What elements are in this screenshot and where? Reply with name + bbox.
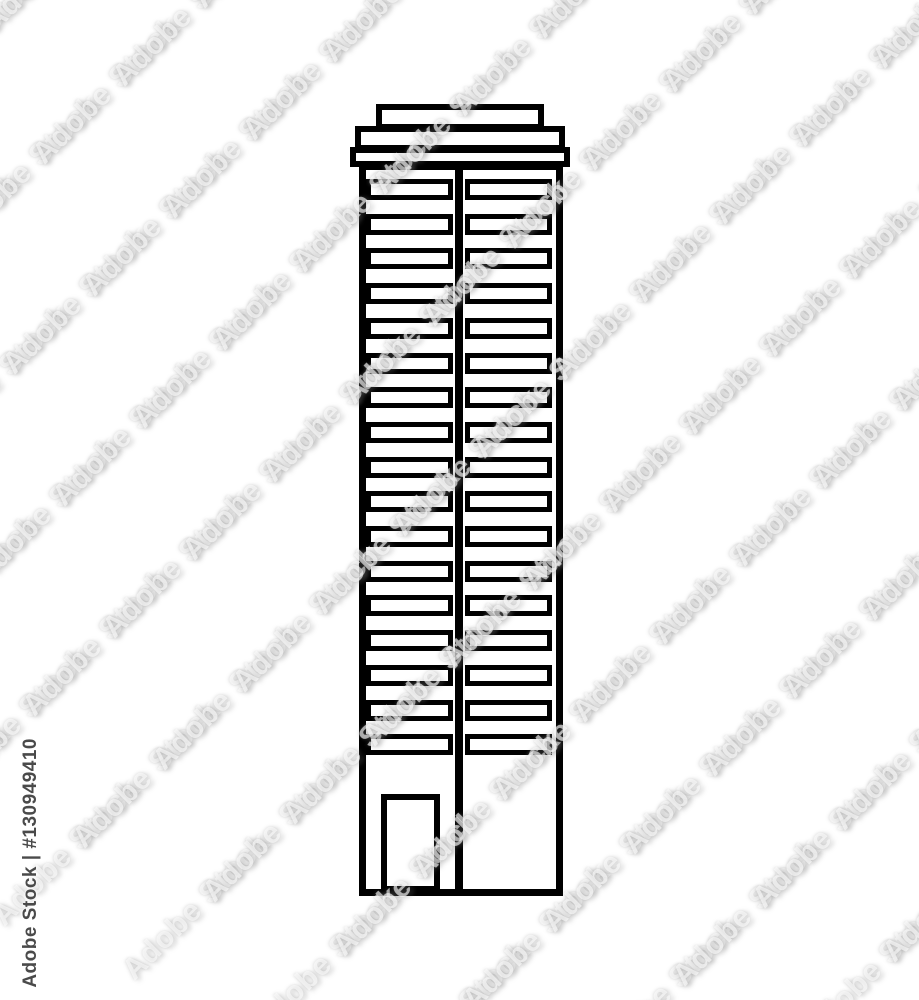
watermark-tile-text: Adobe Stock xyxy=(156,64,317,225)
watermark-tile-text: Adobe Stock xyxy=(806,334,919,495)
building-window xyxy=(366,457,453,478)
watermark-tile-text: Adobe Stock xyxy=(676,280,837,441)
window-column-right xyxy=(465,179,552,779)
watermark-tile-text: Adobe Stock xyxy=(0,0,57,117)
building-window xyxy=(366,422,453,443)
watermark-tile-text: Adobe Stock xyxy=(0,298,77,459)
watermark-tile-text: Adobe Stock xyxy=(796,886,919,1000)
building-window xyxy=(465,318,552,339)
building-window xyxy=(366,283,453,304)
watermark-tile-text: Adobe Stock xyxy=(0,430,127,591)
watermark-tile-text: Adobe Stock xyxy=(196,748,357,909)
roof-cornice xyxy=(350,147,570,167)
watermark-tile-text: Adobe Stock xyxy=(626,148,787,309)
watermark-tile-text: Adobe Stock xyxy=(96,484,257,645)
building-window xyxy=(465,283,552,304)
building-window xyxy=(366,179,453,200)
building-window xyxy=(465,179,552,200)
building-window xyxy=(465,595,552,616)
watermark-tile-text: Adobe Stock xyxy=(0,718,17,879)
watermark-tile-text: Adobe Stock xyxy=(856,466,919,627)
building-window xyxy=(465,457,552,478)
building-window xyxy=(465,734,552,755)
building-window xyxy=(366,630,453,651)
watermark-tile-text: Adobe Stock xyxy=(186,0,347,15)
watermark-tile-text: Adobe Stock xyxy=(786,0,919,153)
watermark-tile-text: Adobe Stock xyxy=(696,622,857,783)
watermark-tile-text: Adobe Stock xyxy=(236,0,397,147)
watermark-tile-text: Adobe Stock xyxy=(836,124,919,285)
building-window xyxy=(465,561,552,582)
building-window xyxy=(465,387,552,408)
watermark-tile-text: Adobe Stock xyxy=(16,562,177,723)
watermark-tile-text: Adobe Stock xyxy=(126,274,287,435)
stock-image-canvas: Adobe StockAdobe StockAdobe StockAdobe S… xyxy=(0,0,919,1000)
watermark-tile-text: Adobe Stock xyxy=(116,826,277,987)
window-column-left xyxy=(366,179,453,779)
building-window xyxy=(465,526,552,547)
building-window xyxy=(366,595,453,616)
watermark-tile-text: Adobe Stock xyxy=(746,754,907,915)
watermark-tile-text: Adobe Stock xyxy=(26,10,187,171)
watermark-tile-text: Adobe Stock xyxy=(646,490,807,651)
building-window xyxy=(465,353,552,374)
building-window xyxy=(366,491,453,512)
watermark-tile-text: Adobe Stock xyxy=(726,412,887,573)
building-window xyxy=(366,387,453,408)
watermark-tile-text: Adobe Stock xyxy=(146,616,307,777)
building-center-divider xyxy=(455,167,463,892)
watermark-tile-text: Adobe Stock xyxy=(756,202,917,363)
building-window xyxy=(366,700,453,721)
watermark-tile-text: Adobe Stock xyxy=(826,676,919,837)
watermark-tile-text: Adobe Stock xyxy=(526,0,687,45)
watermark-tile-text: Adobe Stock xyxy=(66,694,227,855)
watermark-tile-text: Adobe Stock xyxy=(106,0,267,93)
building-window xyxy=(366,214,453,235)
building-window xyxy=(366,526,453,547)
building-window xyxy=(366,318,453,339)
building-window xyxy=(366,561,453,582)
watermark-tile-text: Adobe Stock xyxy=(656,0,817,99)
watermark-tile-text: Adobe Stock xyxy=(886,256,919,417)
building-window xyxy=(465,700,552,721)
watermark-tile-text: Adobe Stock xyxy=(596,358,757,519)
watermark-tile-text: Adobe Stock xyxy=(246,880,407,1000)
watermark-tile-text: Adobe Stock xyxy=(666,832,827,993)
building-window xyxy=(366,353,453,374)
building-window xyxy=(366,248,453,269)
watermark-tile-text: Adobe Stock xyxy=(76,142,237,303)
watermark-tile-text: Adobe Stock xyxy=(0,166,27,327)
building-window xyxy=(465,665,552,686)
watermark-tile-text: Adobe Stock xyxy=(0,0,137,39)
building-window xyxy=(465,630,552,651)
watermark-tile-text: Adobe Stock xyxy=(206,196,367,357)
watermark-tile-text: Adobe Stock xyxy=(866,0,919,75)
watermark-tile-text: Adobe Stock xyxy=(46,352,207,513)
watermark-tile-text: Adobe Stock xyxy=(576,16,737,177)
watermark-tile-text: Adobe Stock xyxy=(566,568,727,729)
watermark-attribution: Adobe Stock | #130949410 xyxy=(20,738,42,988)
building-window xyxy=(366,665,453,686)
building-door xyxy=(381,794,440,892)
watermark-tile-text: Adobe Stock xyxy=(0,508,47,669)
watermark-tile-text: Adobe Stock xyxy=(776,544,919,705)
watermark-tile-text: Adobe Stock xyxy=(706,70,867,231)
watermark-tile-text: Adobe Stock xyxy=(316,0,477,69)
watermark-tile-text: Adobe Stock xyxy=(0,88,107,249)
watermark-tile-text: Adobe Stock xyxy=(376,934,537,1000)
watermark-tile-text: Adobe Stock xyxy=(876,808,919,969)
watermark-tile-text: Adobe Stock xyxy=(0,220,157,381)
watermark-tile-text: Adobe Stock xyxy=(176,406,337,567)
building-window xyxy=(366,734,453,755)
watermark-tile-text: Adobe Stock xyxy=(586,910,747,1000)
building-window xyxy=(465,214,552,235)
watermark-tile-text: Adobe Stock xyxy=(736,0,897,21)
watermark-tile-text: Adobe Stock xyxy=(546,226,707,387)
building-window xyxy=(465,248,552,269)
watermark-tile-text: Adobe Stock xyxy=(0,640,97,801)
building-window xyxy=(465,422,552,443)
building-window xyxy=(465,491,552,512)
watermark-tile-text: Adobe Stock xyxy=(616,700,777,861)
watermark-tile-text: Adobe Stock xyxy=(906,598,919,759)
